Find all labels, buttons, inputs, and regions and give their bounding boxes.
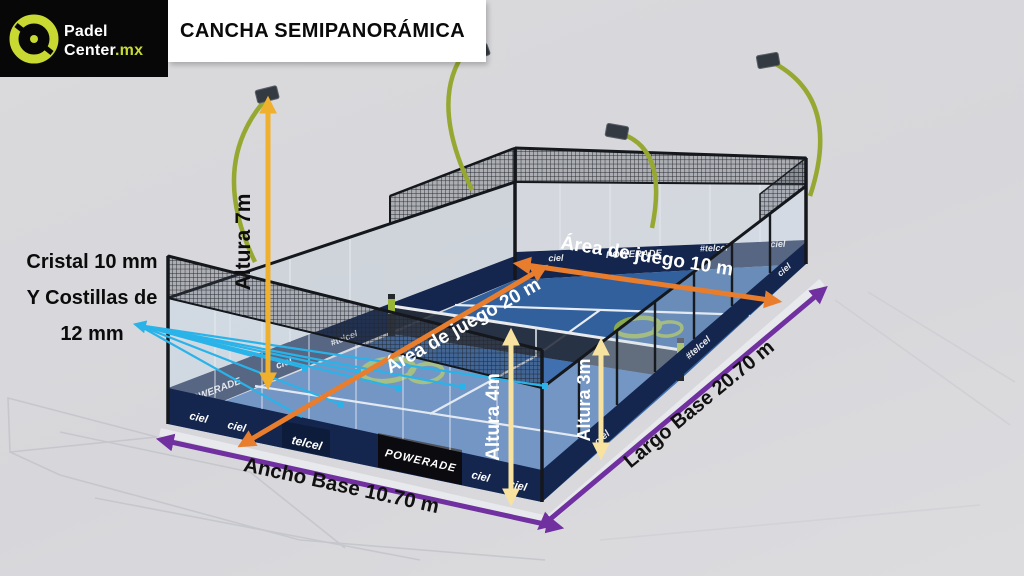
- title-box: CANCHA SEMIPANORÁMICA: [168, 0, 486, 62]
- brand-box: Padel Center.mx: [0, 0, 168, 77]
- glass-note-line1: Cristal 10 mm: [26, 251, 157, 273]
- height-4m-label: Altura 4m: [483, 373, 504, 461]
- height-3m-label: Altura 3m: [574, 358, 594, 441]
- height-7m-label: Altura 7m: [232, 194, 255, 291]
- floodlight-front-left: [255, 86, 279, 104]
- brand-line2: Center: [64, 42, 115, 59]
- padel-center-logo-icon: [6, 11, 62, 67]
- glass-note-line3: 12 mm: [60, 323, 123, 345]
- brand-tld: .mx: [115, 42, 143, 59]
- glass-note-line2: Y Costillas de: [27, 287, 158, 309]
- page-title: CANCHA SEMIPANORÁMICA: [168, 20, 465, 43]
- brand-line1: Padel: [64, 23, 108, 40]
- sponsor-ciel-far1: ciel: [548, 253, 564, 264]
- screenshot-root: POWERADE ciel #telcel ciel POWERADE #tel…: [0, 0, 1024, 576]
- glass-note: Cristal 10 mm Y Costillas de 12 mm: [4, 244, 180, 352]
- floodlight-back-mid: [605, 123, 629, 140]
- brand-text: Padel Center.mx: [64, 22, 143, 60]
